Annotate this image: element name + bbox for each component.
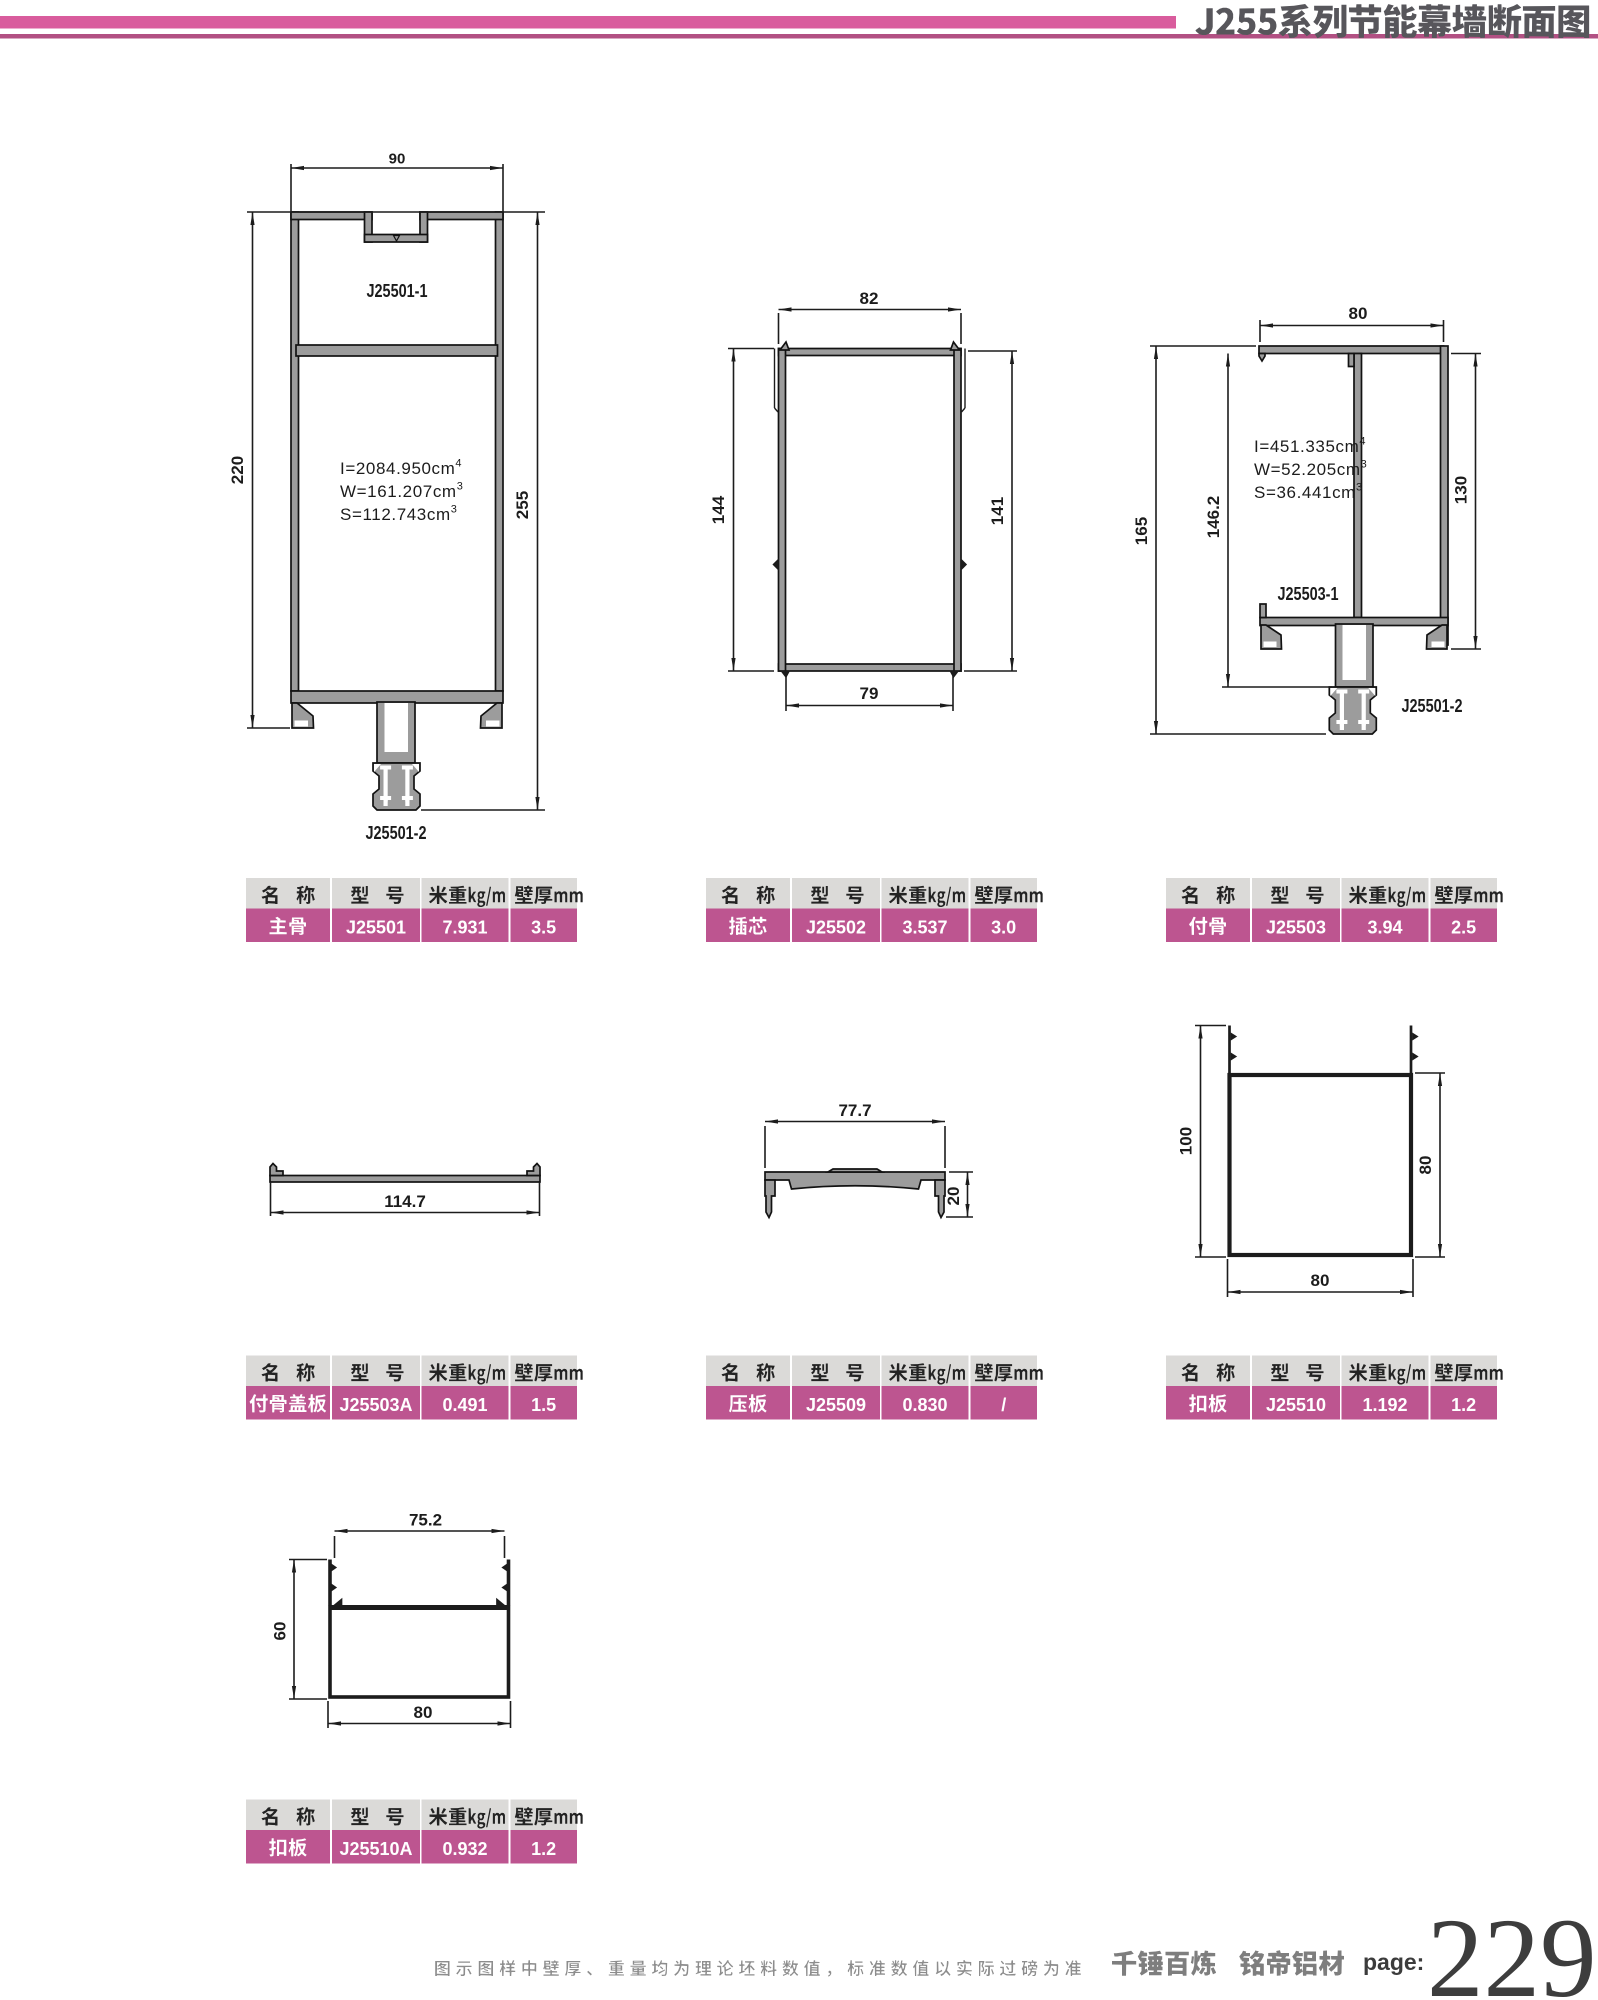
svg-text:1.5: 1.5 xyxy=(531,1395,556,1415)
svg-text:/: / xyxy=(1001,1395,1006,1415)
svg-text:0.932: 0.932 xyxy=(442,1839,487,1859)
svg-text:J25510: J25510 xyxy=(1266,1395,1326,1415)
svg-text:J25501-2: J25501-2 xyxy=(1402,695,1463,716)
svg-text:J25501: J25501 xyxy=(346,918,406,938)
svg-text:100: 100 xyxy=(1177,1127,1196,1155)
svg-text:220: 220 xyxy=(228,456,247,484)
svg-text:82: 82 xyxy=(860,289,879,308)
svg-text:J25509: J25509 xyxy=(806,1395,866,1415)
svg-text:7.931: 7.931 xyxy=(442,918,487,938)
svg-text:80: 80 xyxy=(414,1703,433,1722)
svg-text:75.2: 75.2 xyxy=(409,1511,442,1530)
svg-text:1.2: 1.2 xyxy=(531,1839,556,1859)
svg-text:60: 60 xyxy=(271,1622,290,1641)
svg-text:146.2: 146.2 xyxy=(1204,496,1223,539)
svg-text:S=112.743cm3: S=112.743cm3 xyxy=(340,504,457,525)
svg-text:79: 79 xyxy=(860,684,879,703)
svg-text:255: 255 xyxy=(513,491,532,519)
svg-text:80: 80 xyxy=(1311,1271,1330,1290)
svg-text:J25510A: J25510A xyxy=(339,1839,412,1859)
svg-text:J25503-1: J25503-1 xyxy=(1278,583,1339,604)
svg-text:J25501-1: J25501-1 xyxy=(367,280,428,301)
svg-text:3.537: 3.537 xyxy=(902,918,947,938)
svg-text:165: 165 xyxy=(1132,517,1151,545)
svg-text:77.7: 77.7 xyxy=(838,1101,871,1120)
svg-text:W=161.207cm3: W=161.207cm3 xyxy=(340,481,463,502)
svg-text:J25503: J25503 xyxy=(1266,918,1326,938)
svg-text:90: 90 xyxy=(389,151,406,168)
svg-text:130: 130 xyxy=(1452,476,1471,504)
svg-text:114.7: 114.7 xyxy=(384,1192,426,1211)
svg-text:229: 229 xyxy=(1427,1896,1597,2000)
svg-text:S=36.441cm3: S=36.441cm3 xyxy=(1254,482,1363,503)
svg-text:W=52.205cm3: W=52.205cm3 xyxy=(1254,459,1367,480)
svg-text:J25502: J25502 xyxy=(806,918,866,938)
svg-text:3.0: 3.0 xyxy=(991,918,1016,938)
svg-text:0.491: 0.491 xyxy=(442,1395,487,1415)
svg-text:page:: page: xyxy=(1363,1949,1424,1975)
svg-text:144: 144 xyxy=(709,495,728,524)
svg-text:3.94: 3.94 xyxy=(1367,918,1402,938)
svg-text:80: 80 xyxy=(1349,304,1368,323)
svg-text:I=451.335cm4: I=451.335cm4 xyxy=(1254,436,1366,457)
svg-text:2.5: 2.5 xyxy=(1451,918,1476,938)
svg-text:80: 80 xyxy=(1416,1156,1435,1175)
svg-text:1.192: 1.192 xyxy=(1362,1395,1407,1415)
svg-text:J25503A: J25503A xyxy=(339,1395,412,1415)
svg-text:3.5: 3.5 xyxy=(531,918,556,938)
svg-text:0.830: 0.830 xyxy=(902,1395,947,1415)
svg-text:J25501-2: J25501-2 xyxy=(366,822,427,843)
svg-text:141: 141 xyxy=(988,497,1007,525)
svg-text:20: 20 xyxy=(944,1187,963,1206)
svg-text:1.2: 1.2 xyxy=(1451,1395,1476,1415)
svg-text:I=2084.950cm4: I=2084.950cm4 xyxy=(340,458,462,479)
